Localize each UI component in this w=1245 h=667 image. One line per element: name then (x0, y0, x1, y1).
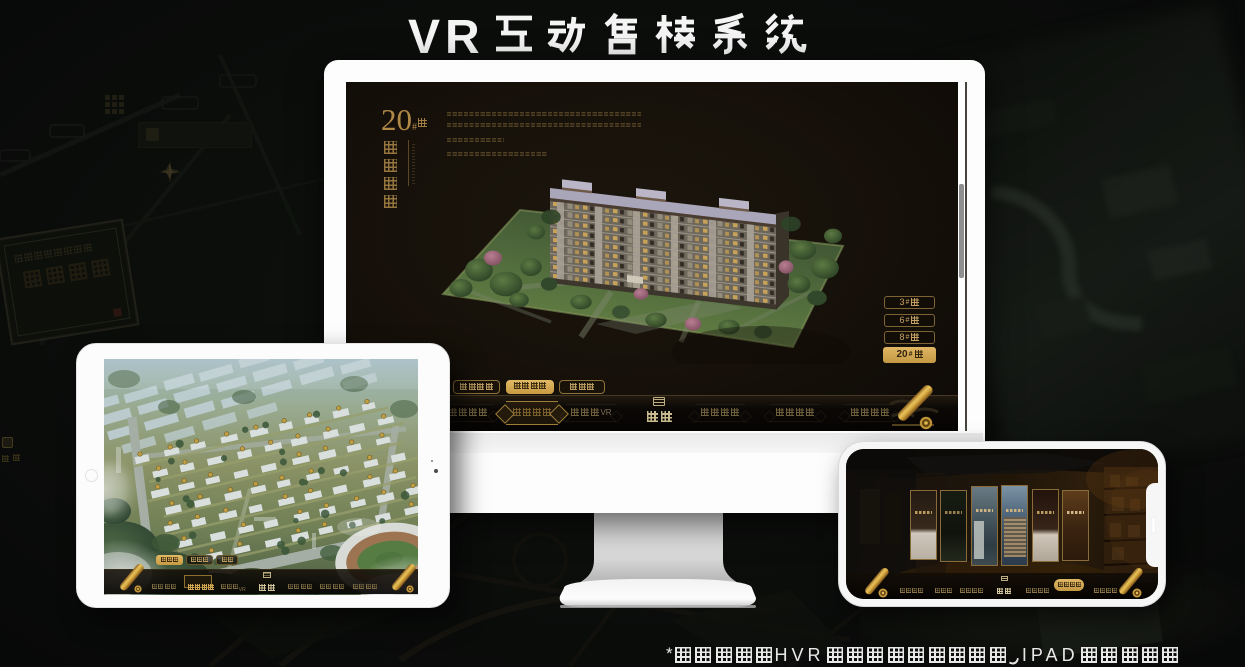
svg-text:VR: VR (408, 11, 485, 56)
